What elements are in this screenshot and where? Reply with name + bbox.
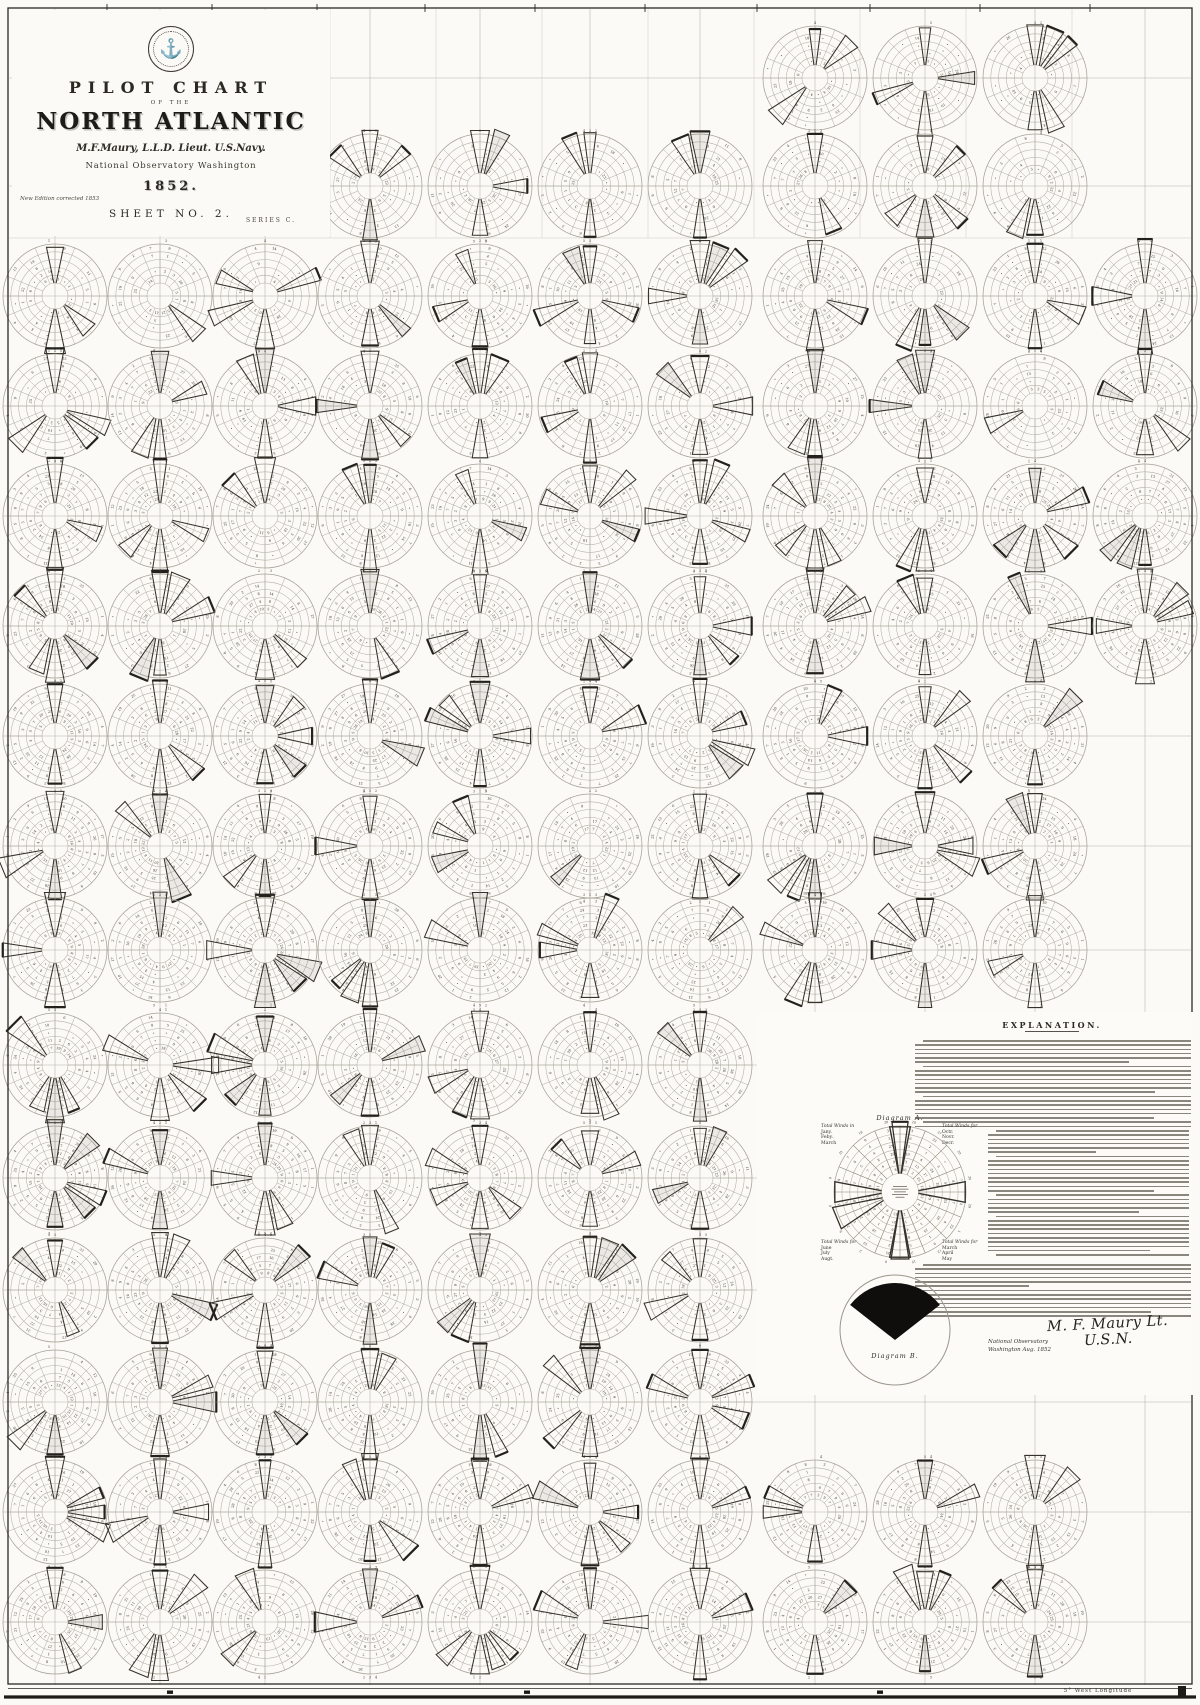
svg-text:3: 3: [564, 620, 568, 623]
diagram-a-corner-label-nw: Total Winds in Jany. Feby. March: [821, 1124, 854, 1147]
svg-text:2: 2: [1053, 610, 1058, 614]
svg-text:6: 6: [502, 629, 506, 632]
svg-text:22: 22: [772, 156, 778, 162]
svg-text:5: 5: [488, 561, 491, 565]
svg-text:12: 12: [110, 504, 115, 509]
svg-text:5: 5: [471, 553, 474, 557]
svg-text:4: 4: [837, 510, 842, 514]
svg-text:8: 8: [835, 437, 839, 442]
svg-text:12: 12: [670, 641, 676, 647]
svg-text:5: 5: [561, 224, 565, 229]
svg-text:16: 16: [900, 700, 906, 706]
svg-text:13: 13: [1040, 694, 1045, 699]
svg-text:6: 6: [786, 422, 791, 426]
svg-text:16: 16: [826, 632, 832, 638]
svg-text:12: 12: [826, 644, 832, 650]
svg-text:7: 7: [716, 431, 720, 436]
svg-text:7: 7: [392, 629, 396, 632]
svg-text:3: 3: [883, 707, 888, 711]
svg-text:7: 7: [1116, 664, 1120, 669]
svg-text:15: 15: [1064, 287, 1069, 292]
svg-text:1: 1: [909, 493, 913, 498]
svg-text:1: 1: [134, 400, 138, 403]
svg-text:3: 3: [1151, 364, 1154, 368]
svg-text:6: 6: [475, 530, 478, 534]
svg-text:28: 28: [174, 730, 179, 735]
svg-text:1: 1: [464, 754, 468, 759]
svg-text:8: 8: [933, 561, 936, 565]
text-line: [915, 1117, 1154, 1119]
svg-text:9: 9: [492, 725, 497, 729]
svg-text:9: 9: [336, 301, 340, 304]
svg-text:21: 21: [715, 156, 721, 162]
svg-text:7: 7: [36, 511, 40, 514]
svg-text:7: 7: [47, 436, 50, 440]
text-line: [915, 1298, 1191, 1300]
svg-text:13: 13: [1026, 372, 1031, 377]
svg-text:2: 2: [67, 725, 72, 729]
svg-text:4: 4: [26, 473, 31, 478]
text-line: [988, 1164, 1189, 1166]
svg-text:2: 2: [928, 758, 931, 762]
svg-text:3: 3: [376, 223, 379, 227]
text-line: [923, 1096, 1191, 1098]
svg-text:5: 5: [485, 592, 488, 596]
svg-text:27: 27: [184, 663, 190, 669]
svg-text:22: 22: [1176, 645, 1182, 651]
svg-text:3: 3: [699, 569, 701, 573]
svg-text:8: 8: [92, 852, 96, 855]
svg-text:6: 6: [671, 554, 675, 559]
svg-text:9: 9: [906, 518, 910, 521]
svg-text:15: 15: [683, 754, 689, 760]
svg-text:1: 1: [891, 728, 895, 731]
svg-text:5: 5: [820, 482, 823, 486]
svg-text:5: 5: [344, 290, 348, 293]
svg-text:1: 1: [54, 459, 56, 463]
svg-text:9: 9: [1182, 397, 1186, 400]
svg-text:3: 3: [180, 700, 184, 705]
svg-text:9: 9: [502, 290, 506, 293]
anchor-icon: ⚓: [153, 31, 189, 67]
svg-text:9: 9: [336, 508, 340, 511]
svg-text:1: 1: [1019, 314, 1023, 319]
svg-text:4: 4: [671, 473, 676, 478]
svg-text:8: 8: [1066, 54, 1071, 58]
svg-text:7: 7: [60, 702, 63, 706]
svg-text:3: 3: [906, 80, 910, 83]
svg-text:1: 1: [564, 189, 568, 192]
svg-text:1: 1: [85, 301, 89, 304]
svg-text:8: 8: [1096, 524, 1100, 527]
svg-text:12: 12: [12, 760, 18, 766]
svg-text:2: 2: [438, 597, 443, 601]
svg-text:1: 1: [54, 569, 56, 573]
svg-text:10: 10: [844, 397, 849, 402]
svg-text:5: 5: [245, 541, 249, 546]
svg-text:1: 1: [1150, 239, 1152, 243]
svg-text:7: 7: [149, 610, 153, 615]
svg-text:3: 3: [525, 725, 529, 728]
svg-text:3: 3: [279, 511, 283, 514]
svg-text:23: 23: [453, 408, 458, 413]
svg-text:3: 3: [781, 741, 785, 744]
text-line: [923, 1040, 1191, 1042]
svg-text:12: 12: [375, 553, 380, 558]
svg-text:1: 1: [166, 254, 169, 258]
svg-text:5: 5: [970, 524, 974, 527]
svg-text:8: 8: [1053, 170, 1058, 174]
svg-text:22: 22: [704, 765, 709, 770]
svg-text:3: 3: [786, 364, 790, 369]
svg-text:9: 9: [548, 707, 553, 711]
svg-text:3: 3: [853, 541, 858, 545]
chart-title-line1: PILOT CHART: [12, 78, 330, 97]
svg-text:1: 1: [517, 632, 521, 635]
svg-text:5: 5: [264, 679, 266, 683]
svg-text:9: 9: [354, 615, 359, 619]
svg-text:7: 7: [941, 707, 945, 712]
svg-text:6: 6: [840, 532, 845, 536]
svg-text:7: 7: [950, 774, 954, 779]
svg-text:1: 1: [999, 382, 1004, 386]
text-line: [988, 1143, 1189, 1145]
svg-text:6: 6: [446, 741, 450, 744]
svg-text:2: 2: [1055, 370, 1059, 375]
svg-text:23: 23: [773, 83, 778, 88]
svg-text:4: 4: [595, 680, 597, 684]
svg-text:5: 5: [118, 837, 122, 840]
svg-text:4: 4: [583, 129, 585, 133]
svg-text:1: 1: [671, 312, 676, 316]
svg-text:1: 1: [185, 862, 190, 866]
svg-text:4: 4: [148, 891, 152, 896]
svg-text:2: 2: [152, 372, 155, 376]
svg-text:2: 2: [914, 638, 918, 643]
svg-text:7: 7: [845, 631, 849, 634]
svg-text:5: 5: [692, 702, 695, 706]
svg-text:12: 12: [494, 400, 499, 405]
svg-text:1: 1: [718, 308, 723, 312]
svg-text:6: 6: [876, 285, 880, 288]
svg-text:4: 4: [1103, 522, 1108, 526]
svg-text:5: 5: [993, 632, 997, 635]
svg-text:7: 7: [285, 657, 289, 662]
svg-text:9: 9: [236, 752, 241, 756]
svg-text:25: 25: [347, 637, 353, 643]
svg-text:2: 2: [19, 756, 24, 760]
svg-text:6: 6: [44, 280, 48, 285]
svg-text:6: 6: [364, 208, 367, 212]
svg-text:8: 8: [1011, 657, 1015, 662]
svg-text:14: 14: [289, 605, 295, 612]
svg-text:5: 5: [273, 451, 276, 455]
svg-text:8: 8: [1040, 702, 1043, 706]
svg-text:23: 23: [1057, 408, 1062, 413]
svg-text:28: 28: [235, 641, 241, 647]
svg-text:8: 8: [39, 523, 44, 527]
svg-text:24: 24: [834, 327, 841, 333]
svg-text:4: 4: [765, 633, 770, 637]
svg-text:7: 7: [376, 773, 379, 777]
text-line: [988, 1224, 1189, 1226]
svg-text:7: 7: [963, 597, 968, 601]
svg-text:2: 2: [1096, 414, 1100, 417]
svg-text:26: 26: [803, 747, 809, 753]
svg-text:3: 3: [1125, 651, 1129, 656]
svg-text:28: 28: [66, 754, 72, 760]
text-line: [915, 1087, 1191, 1089]
svg-text:15: 15: [852, 706, 858, 712]
svg-text:8: 8: [1175, 521, 1179, 524]
svg-text:4: 4: [569, 760, 574, 765]
svg-text:1: 1: [26, 554, 30, 559]
svg-text:4: 4: [889, 756, 894, 761]
svg-text:4: 4: [556, 727, 561, 731]
svg-text:21: 21: [349, 650, 355, 656]
svg-text:4: 4: [30, 327, 35, 332]
svg-text:1: 1: [93, 761, 98, 765]
wind-rose: 1162011983591642617833851771048821891728…: [0, 789, 107, 899]
svg-text:4: 4: [792, 637, 797, 642]
svg-text:4: 4: [1040, 349, 1042, 353]
svg-text:25: 25: [554, 755, 560, 761]
svg-text:5: 5: [564, 180, 568, 183]
svg-text:27: 27: [340, 693, 346, 699]
svg-text:1: 1: [386, 761, 390, 766]
svg-text:7: 7: [26, 642, 31, 646]
svg-text:5: 5: [930, 21, 932, 25]
svg-text:3: 3: [1040, 570, 1042, 574]
svg-text:1: 1: [712, 424, 716, 429]
svg-text:16: 16: [650, 743, 655, 748]
svg-text:18: 18: [805, 36, 810, 41]
svg-text:19: 19: [12, 706, 18, 712]
svg-text:2: 2: [197, 742, 201, 745]
svg-text:7: 7: [80, 862, 85, 866]
svg-text:8: 8: [272, 858, 276, 863]
svg-text:1: 1: [658, 727, 662, 730]
svg-text:5: 5: [939, 73, 943, 76]
svg-text:27: 27: [253, 637, 259, 643]
svg-text:4: 4: [674, 619, 679, 623]
svg-text:4: 4: [676, 260, 681, 265]
svg-text:8: 8: [69, 848, 73, 851]
svg-text:15: 15: [110, 853, 115, 858]
svg-text:8: 8: [492, 314, 496, 319]
svg-text:2: 2: [574, 644, 578, 649]
svg-text:7: 7: [795, 651, 799, 656]
svg-text:28: 28: [852, 650, 858, 656]
svg-text:2: 2: [334, 602, 339, 606]
svg-text:7: 7: [223, 287, 227, 290]
svg-text:1: 1: [610, 547, 614, 552]
svg-text:14: 14: [915, 36, 921, 41]
svg-text:26: 26: [690, 663, 695, 668]
svg-text:12: 12: [468, 527, 474, 533]
svg-text:6: 6: [927, 92, 930, 96]
svg-text:8: 8: [852, 177, 856, 180]
svg-text:7: 7: [223, 632, 227, 635]
svg-text:28: 28: [182, 628, 187, 633]
svg-text:14: 14: [852, 266, 858, 273]
svg-text:3: 3: [1049, 738, 1053, 741]
svg-text:3: 3: [290, 664, 294, 669]
svg-text:2: 2: [827, 725, 832, 729]
svg-text:2: 2: [382, 725, 387, 729]
svg-text:9: 9: [937, 493, 941, 498]
svg-text:22: 22: [231, 837, 236, 842]
svg-text:9: 9: [256, 804, 259, 808]
svg-text:1: 1: [821, 694, 824, 698]
svg-text:1: 1: [1029, 710, 1032, 714]
svg-text:6: 6: [795, 707, 799, 712]
svg-text:9: 9: [375, 766, 378, 770]
svg-text:3: 3: [827, 413, 832, 417]
svg-text:5: 5: [833, 638, 838, 642]
svg-text:7: 7: [931, 773, 934, 777]
svg-text:7: 7: [176, 541, 180, 546]
svg-text:5: 5: [833, 500, 838, 504]
svg-text:1: 1: [814, 679, 816, 683]
svg-text:17: 17: [675, 700, 681, 706]
svg-text:6: 6: [681, 621, 685, 624]
svg-text:8: 8: [684, 204, 688, 209]
svg-text:2: 2: [902, 748, 907, 752]
svg-text:13: 13: [929, 702, 934, 707]
text-line: [996, 1216, 1189, 1218]
svg-text:7: 7: [621, 602, 626, 606]
wind-rose: 9278381224985514881188175228510286382029…: [873, 1455, 980, 1566]
svg-text:5: 5: [57, 420, 60, 424]
svg-text:4: 4: [814, 21, 816, 25]
svg-text:2: 2: [595, 459, 597, 463]
svg-text:5: 5: [906, 188, 910, 191]
svg-text:8: 8: [474, 270, 477, 274]
svg-text:26: 26: [1005, 35, 1011, 41]
svg-text:19: 19: [407, 396, 412, 401]
svg-text:9: 9: [474, 490, 477, 494]
svg-text:4: 4: [100, 725, 105, 729]
svg-text:2: 2: [126, 838, 130, 841]
svg-text:6: 6: [596, 144, 599, 148]
svg-text:9: 9: [321, 725, 325, 728]
svg-text:2: 2: [350, 321, 354, 326]
svg-text:7: 7: [602, 383, 606, 388]
text-line: [915, 1074, 1191, 1076]
svg-text:1: 1: [909, 285, 914, 289]
svg-text:2: 2: [651, 634, 655, 637]
svg-text:2: 2: [1060, 752, 1065, 756]
svg-text:21: 21: [66, 504, 72, 510]
svg-text:25: 25: [724, 583, 730, 589]
svg-text:3: 3: [1065, 508, 1069, 511]
svg-text:7: 7: [956, 646, 961, 650]
svg-text:16: 16: [244, 760, 250, 766]
svg-text:1: 1: [144, 633, 149, 637]
text-line: [915, 1091, 1155, 1093]
svg-text:12: 12: [985, 743, 990, 748]
svg-text:9: 9: [840, 642, 845, 646]
svg-text:9: 9: [500, 590, 504, 595]
svg-text:6: 6: [351, 518, 355, 521]
svg-text:9: 9: [92, 302, 96, 305]
svg-text:4: 4: [472, 482, 476, 487]
svg-text:4: 4: [491, 413, 496, 418]
svg-text:7: 7: [451, 532, 456, 536]
svg-text:6: 6: [628, 487, 633, 491]
svg-text:9: 9: [85, 728, 89, 731]
svg-text:4: 4: [178, 858, 183, 863]
svg-text:9: 9: [457, 170, 462, 174]
svg-text:3: 3: [241, 767, 245, 772]
svg-text:2: 2: [579, 561, 582, 565]
svg-text:2: 2: [131, 254, 135, 259]
svg-text:17: 17: [100, 834, 105, 839]
svg-text:3: 3: [149, 308, 153, 313]
svg-text:6: 6: [1051, 211, 1055, 216]
svg-text:3: 3: [730, 521, 734, 524]
svg-text:4: 4: [1042, 123, 1046, 128]
svg-text:17: 17: [1167, 509, 1172, 514]
svg-text:7: 7: [1051, 651, 1055, 656]
svg-text:3: 3: [593, 208, 596, 212]
svg-text:7: 7: [80, 694, 84, 699]
svg-text:22: 22: [30, 877, 36, 883]
svg-text:8: 8: [1038, 490, 1041, 494]
svg-text:2: 2: [1016, 298, 1020, 301]
svg-text:27: 27: [1128, 284, 1134, 290]
svg-text:18: 18: [381, 383, 387, 389]
svg-text:14: 14: [563, 627, 568, 633]
svg-text:1: 1: [172, 633, 177, 637]
svg-text:8: 8: [400, 411, 404, 414]
svg-text:5: 5: [223, 742, 227, 745]
svg-text:10: 10: [124, 865, 130, 871]
text-line: [915, 1070, 1191, 1072]
svg-text:4: 4: [451, 333, 456, 338]
svg-text:4: 4: [148, 561, 152, 566]
text-line: [988, 1160, 1189, 1162]
svg-text:9: 9: [1043, 357, 1046, 361]
svg-text:4: 4: [895, 641, 900, 646]
svg-text:14: 14: [1018, 643, 1025, 649]
svg-text:5: 5: [174, 841, 178, 844]
svg-text:7: 7: [773, 177, 777, 180]
svg-text:21: 21: [1005, 473, 1011, 479]
svg-text:4: 4: [1138, 239, 1140, 243]
svg-text:17: 17: [79, 473, 85, 479]
svg-text:7: 7: [1165, 327, 1169, 332]
svg-text:6: 6: [1001, 508, 1005, 511]
svg-text:9: 9: [818, 428, 821, 432]
svg-text:6: 6: [1150, 372, 1153, 376]
svg-text:2: 2: [583, 569, 585, 573]
svg-text:2: 2: [795, 597, 799, 602]
svg-text:7: 7: [197, 852, 201, 855]
svg-text:8: 8: [725, 606, 730, 610]
svg-text:12: 12: [1164, 547, 1170, 553]
svg-text:2: 2: [388, 528, 393, 532]
svg-text:27: 27: [248, 603, 254, 609]
svg-text:4: 4: [328, 396, 333, 400]
svg-text:25: 25: [578, 356, 583, 361]
svg-text:17: 17: [595, 553, 600, 558]
svg-text:6: 6: [168, 671, 171, 675]
svg-text:3: 3: [999, 162, 1004, 166]
svg-text:3: 3: [1151, 553, 1154, 557]
svg-text:6: 6: [415, 395, 419, 398]
